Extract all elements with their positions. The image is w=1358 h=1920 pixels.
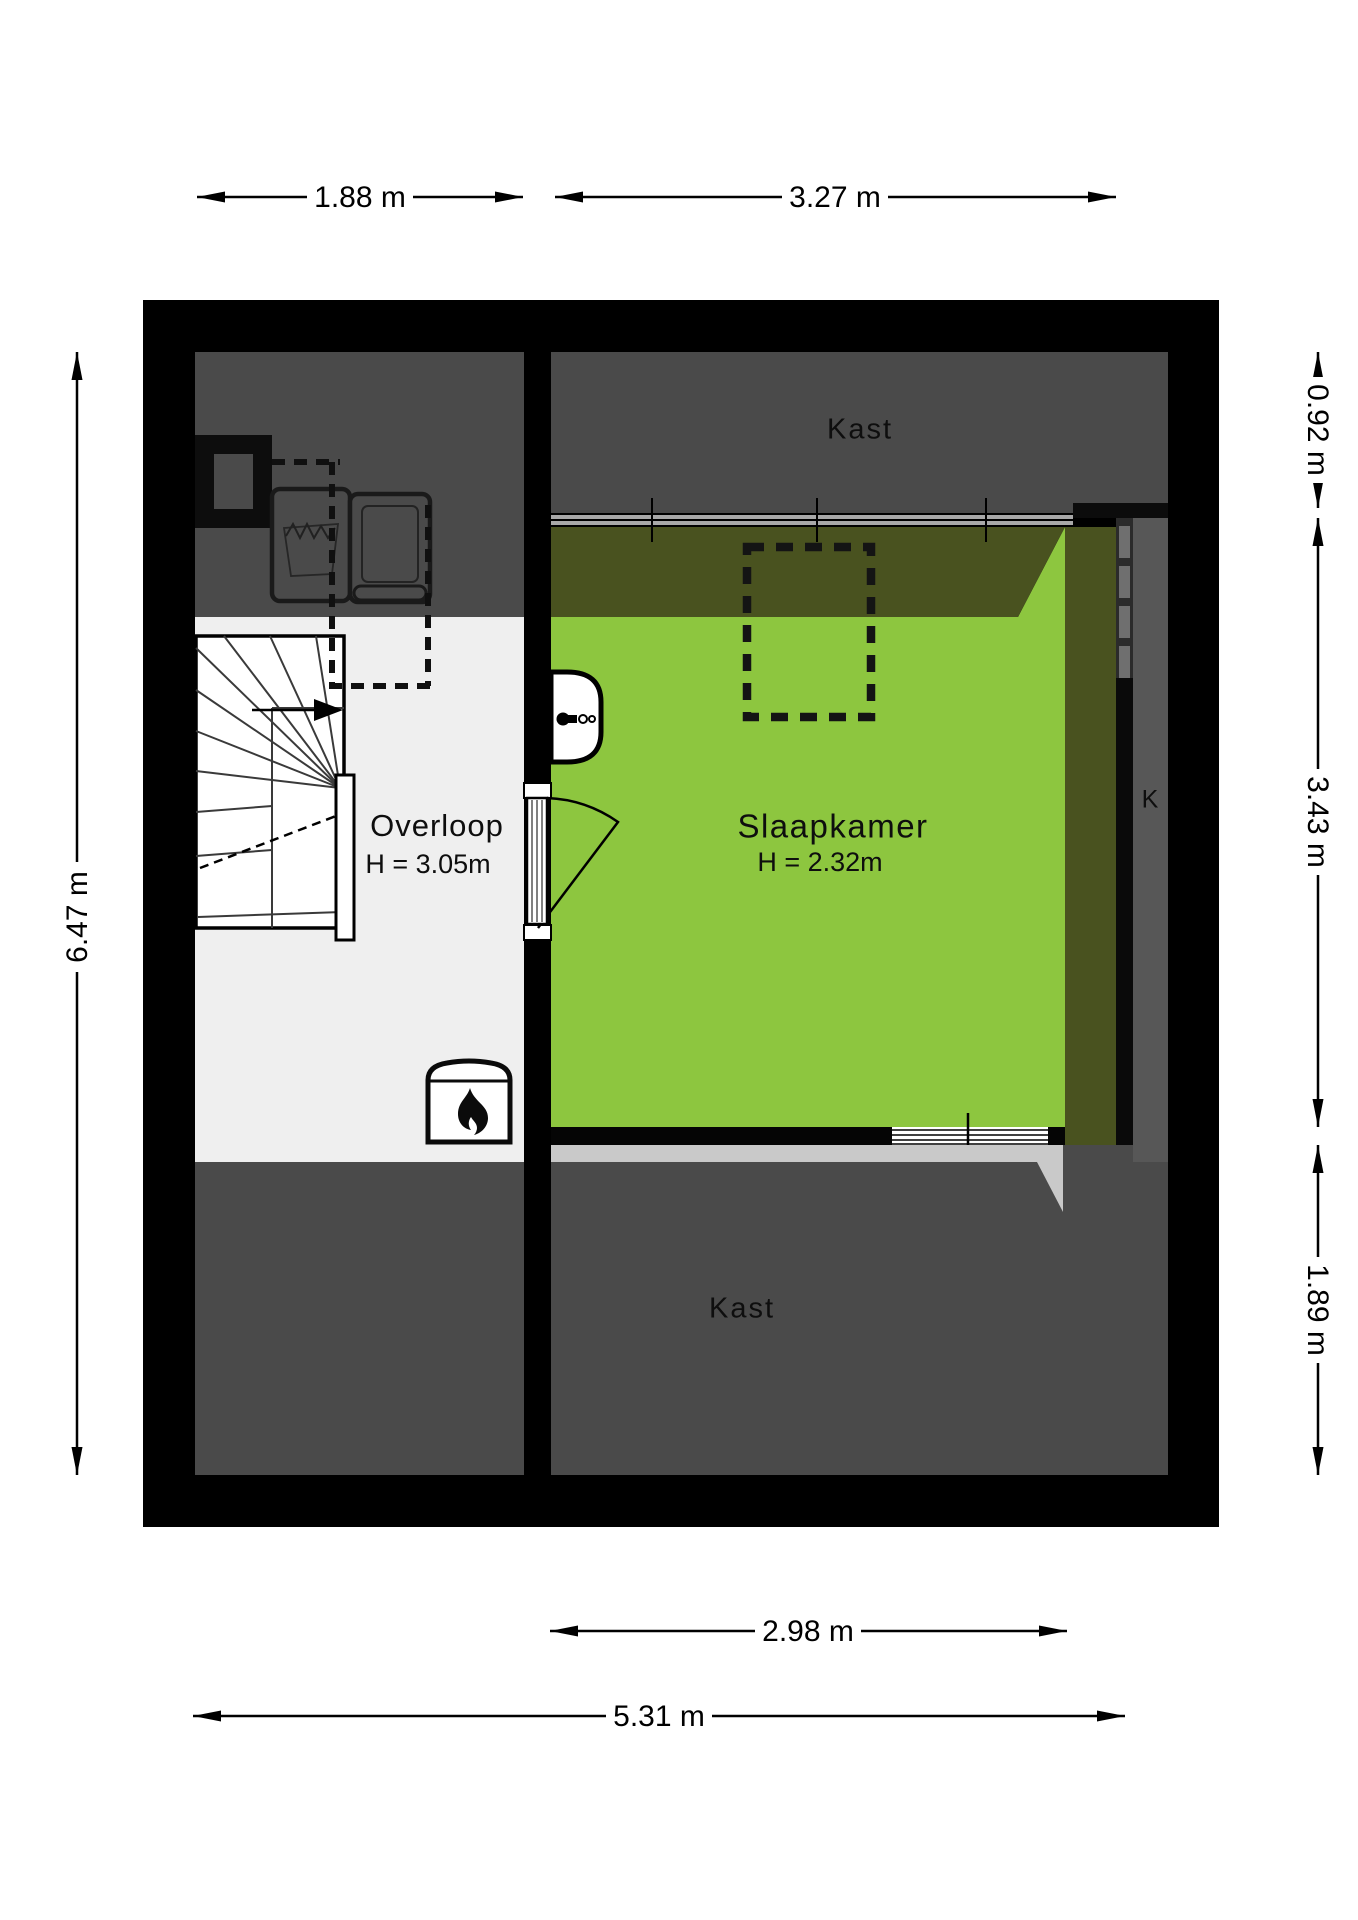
chimney-inner — [214, 454, 253, 509]
toilet-flush-glyph — [589, 716, 595, 722]
dim-label: 5.31 m — [613, 1700, 705, 1733]
dim-bottom-2: 5.31 m — [193, 1698, 1125, 1734]
bottom-wall-band — [1048, 1127, 1065, 1145]
dim-label: 2.98 m — [762, 1615, 854, 1648]
dim-label: 0.92 m — [1301, 384, 1334, 476]
staircase-icon — [196, 636, 354, 940]
toilet-icon — [551, 672, 601, 762]
stair-railing — [336, 775, 354, 940]
dim-right-2: 3.43 m — [1300, 518, 1336, 1127]
dim-top-2: 3.27 m — [555, 179, 1116, 215]
low-ceiling-strip-right — [1065, 527, 1116, 1145]
low-ceiling-band-top — [551, 527, 1065, 617]
sliding-door-dash — [1119, 646, 1130, 678]
overloop-label: Overloop — [370, 808, 504, 843]
sliding-door-track — [1116, 518, 1133, 1145]
floorplan-canvas: Kast Slaapkamer H = 2.32m Overloop H = 3… — [0, 0, 1358, 1920]
sliding-door-dash — [1119, 606, 1130, 638]
bottom-wall-band — [551, 1127, 892, 1145]
kast-top-label: Kast — [827, 414, 893, 446]
dim-label: 1.89 m — [1301, 1264, 1334, 1356]
dim-label: 3.43 m — [1301, 776, 1334, 868]
flame-icon — [428, 1061, 510, 1142]
window-lintel — [1073, 503, 1168, 518]
k-closet-floor — [1133, 518, 1168, 1162]
k-closet-label: K — [1142, 786, 1159, 814]
dim-bottom-1: 2.98 m — [550, 1613, 1067, 1649]
dim-label: 6.47 m — [61, 871, 94, 963]
center-wall-lower — [524, 940, 551, 1527]
sliding-door-dash — [1119, 566, 1130, 598]
dryer-door-bar — [354, 586, 426, 600]
sliding-door-dash — [1119, 526, 1130, 558]
kast-bottom-left-floor — [195, 1162, 524, 1475]
toilet-flush-glyph — [557, 713, 570, 726]
washing-machine-icon — [272, 489, 350, 601]
appliances — [272, 489, 430, 602]
door-jamb — [524, 783, 551, 798]
dim-top-1: 1.88 m — [197, 179, 523, 215]
dim-right-3: 1.89 m — [1300, 1145, 1336, 1475]
slaapkamer-height-label: H = 2.32m — [757, 847, 882, 877]
overloop-height-label: H = 3.05m — [365, 849, 490, 879]
toilet-flush-glyph — [568, 715, 577, 723]
stair-well — [196, 636, 344, 928]
center-wall-upper — [524, 300, 551, 783]
slaapkamer-label: Slaapkamer — [737, 808, 928, 845]
dim-label: 1.88 m — [314, 181, 406, 214]
dim-right-1: 0.92 m — [1300, 352, 1336, 508]
toilet-flush-glyph — [579, 715, 587, 723]
floorplan-page: Kast Slaapkamer H = 2.32m Overloop H = 3… — [0, 0, 1358, 1920]
kast-bottom-floor — [551, 1145, 1168, 1475]
dim-left: 6.47 m — [59, 352, 95, 1475]
window-sill — [551, 1145, 1063, 1162]
track-solid — [1116, 678, 1133, 1145]
kast-bottom-label: Kast — [709, 1293, 775, 1325]
dim-label: 3.27 m — [789, 181, 881, 214]
chimney — [195, 435, 272, 528]
